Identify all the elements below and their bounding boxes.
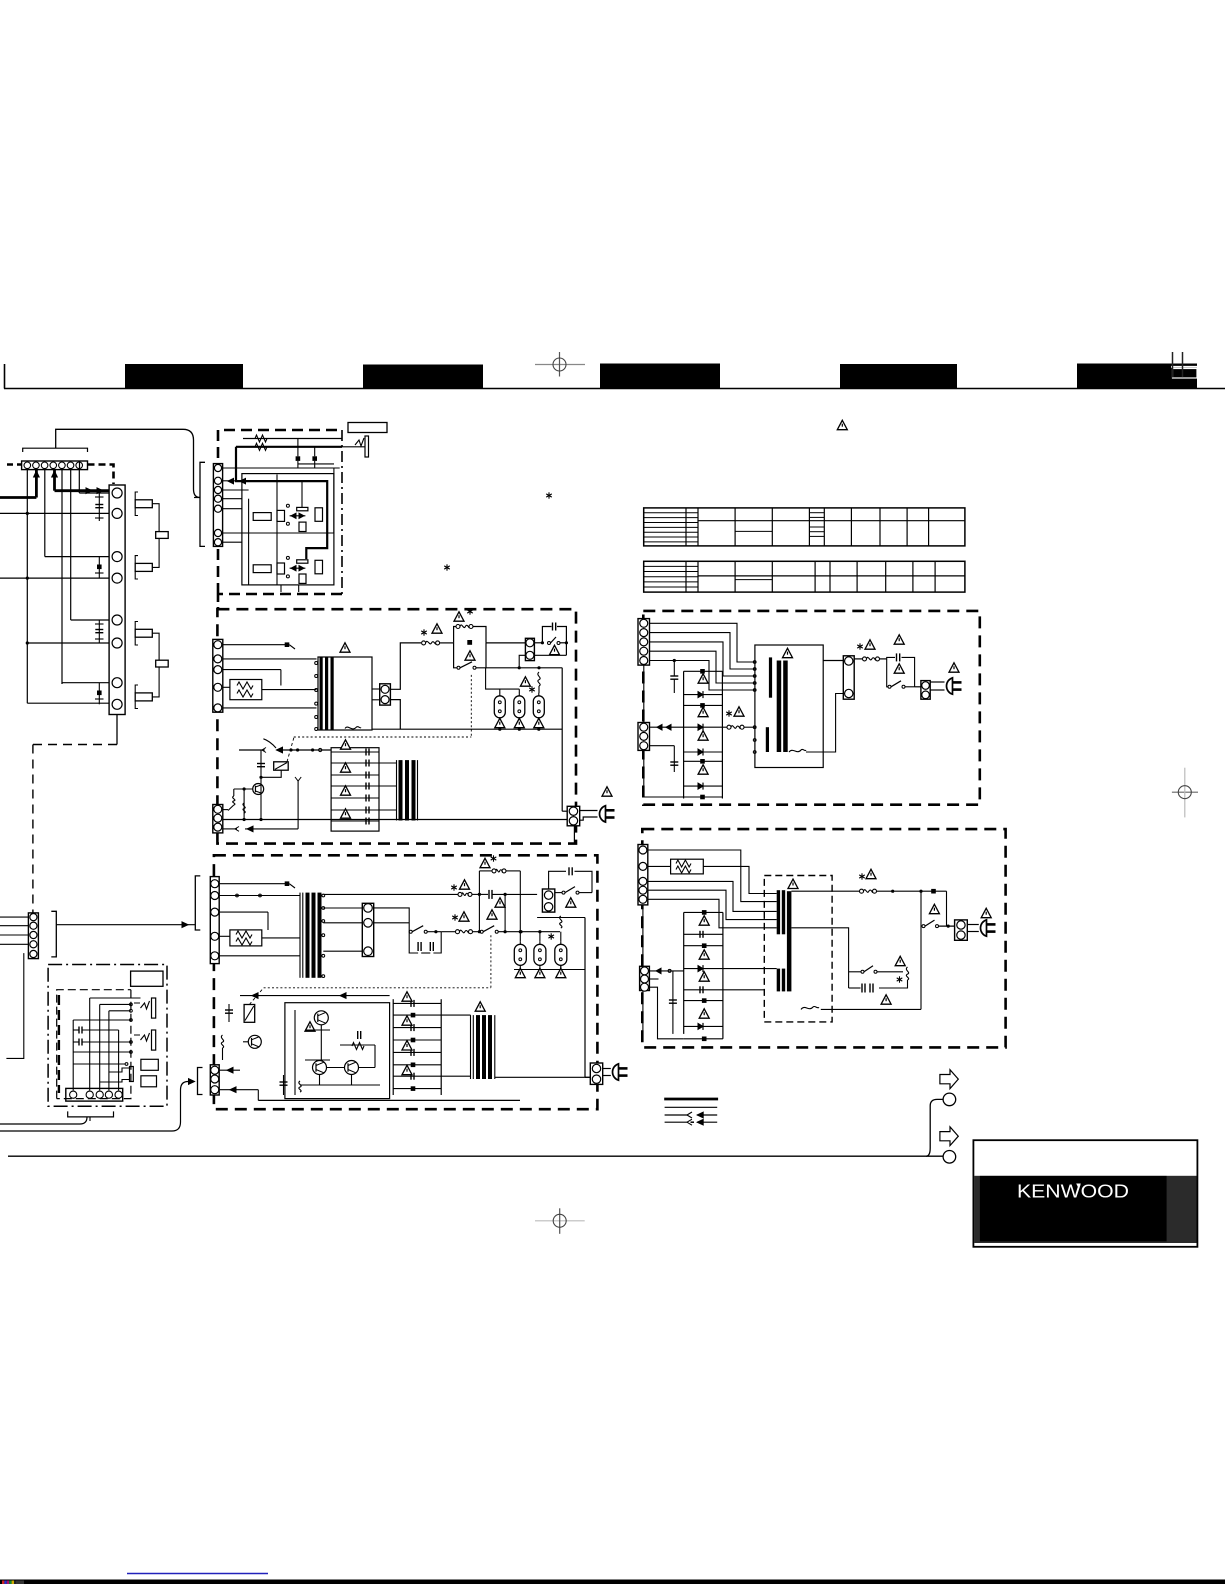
- svg-text:KENWOOD: KENWOOD: [1017, 1181, 1129, 1202]
